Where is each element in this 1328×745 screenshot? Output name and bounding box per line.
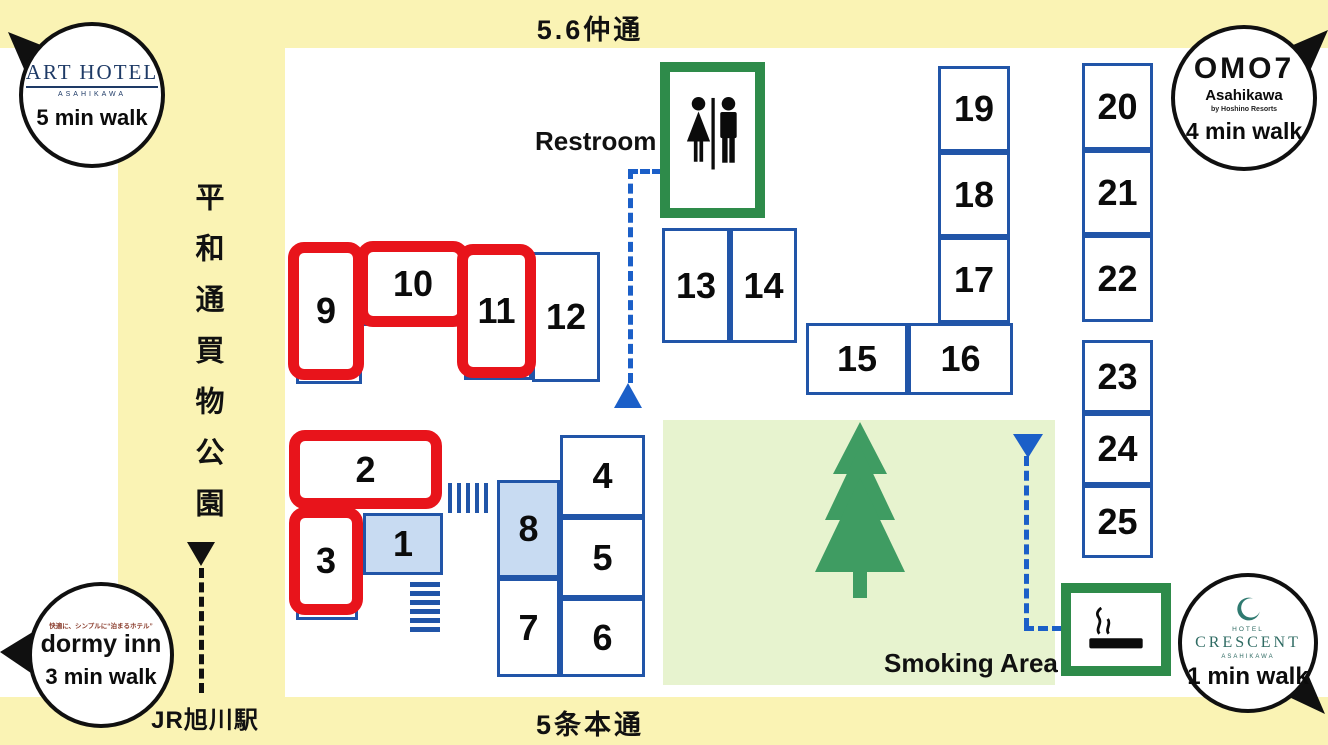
restroom-label: Restroom [535, 126, 656, 157]
street-name-top: 5.6仲通 [505, 8, 675, 47]
omo7-name: OMO7 [1194, 52, 1294, 86]
stairs-icon [410, 582, 440, 635]
booth-11-highlight: 11 [457, 244, 536, 378]
restroom-path-horizontal [628, 169, 662, 174]
restroom-icon [684, 94, 742, 186]
omo7-subname: Asahikawa [1205, 87, 1283, 104]
booth-8: 8 [497, 480, 560, 578]
crosswalk-icon [448, 483, 492, 513]
art-hotel-walk-time: 5 min walk [36, 105, 147, 131]
booth-7: 7 [497, 578, 560, 677]
booth-3-highlight: 3 [289, 507, 363, 615]
booth-1: 1 [363, 513, 443, 575]
street-name-left-vertical: 平和通買物公園 [186, 182, 228, 539]
dormy-inn-walk-time: 3 min walk [45, 664, 156, 690]
booth-15: 15 [806, 323, 908, 395]
smoking-area-label: Smoking Area [884, 648, 1058, 679]
booth-24: 24 [1082, 413, 1153, 485]
booth-21: 21 [1082, 150, 1153, 235]
art-hotel-bubble: ART HOTEL ASAHIKAWA 5 min walk [19, 22, 165, 168]
booth-5: 5 [560, 517, 645, 598]
street-name-bottom: 5条本通 [505, 703, 675, 742]
booth-18: 18 [938, 152, 1010, 237]
booth-19: 19 [938, 66, 1010, 152]
restroom-box [660, 62, 765, 218]
dormy-inn-tagline: 快適に、シンプルに“泊まるホテル” [49, 620, 153, 630]
tree-icon [795, 420, 925, 600]
station-dashed-path [199, 568, 204, 693]
smoking-icon [1083, 607, 1149, 653]
booth-13: 13 [662, 228, 730, 343]
booth-16: 16 [908, 323, 1013, 395]
smoking-path-vertical [1024, 456, 1029, 628]
omo7-walk-time: 4 min walk [1186, 118, 1302, 145]
booth-9-highlight: 9 [288, 242, 364, 380]
booth-10-highlight: 10 [357, 241, 469, 327]
booth-23: 23 [1082, 340, 1153, 413]
crescent-moon-icon [1234, 596, 1262, 624]
booth-6: 6 [560, 598, 645, 677]
booth-17: 17 [938, 237, 1010, 323]
crescent-subname: ASAHIKAWA [1221, 654, 1274, 660]
omo7-byline: by Hoshino Resorts [1211, 106, 1277, 113]
crescent-walk-time: 1 min walk [1187, 663, 1308, 691]
omo7-bubble: OMO7 Asahikawa by Hoshino Resorts 4 min … [1171, 25, 1317, 171]
crescent-pre: HOTEL [1232, 626, 1264, 633]
booth-14: 14 [730, 228, 797, 343]
smoking-path-horizontal [1024, 626, 1062, 631]
art-hotel-name: ART HOTEL [26, 60, 158, 88]
booth-22: 22 [1082, 235, 1153, 322]
booth-12: 12 [532, 252, 600, 382]
booth-20: 20 [1082, 63, 1153, 150]
dormy-inn-bubble: 快適に、シンプルに“泊まるホテル” dormy inn 3 min walk [28, 582, 174, 728]
crescent-name: CRESCENT [1195, 634, 1301, 652]
station-label: JR旭川駅 [140, 700, 270, 735]
smoking-area-box [1061, 583, 1171, 676]
restroom-path-vertical [628, 169, 633, 383]
event-map: 5.6仲通 5条本通 平和通買物公園 JR旭川駅 Restroom [0, 0, 1328, 745]
booth-25: 25 [1082, 485, 1153, 558]
crescent-bubble: HOTEL CRESCENT ASAHIKAWA 1 min walk [1178, 573, 1318, 713]
booth-4: 4 [560, 435, 645, 517]
art-hotel-subname: ASAHIKAWA [58, 91, 126, 98]
booth-2-highlight: 2 [289, 430, 442, 509]
dormy-inn-name: dormy inn [41, 630, 162, 659]
entrance-arrow-up-icon [614, 383, 642, 408]
